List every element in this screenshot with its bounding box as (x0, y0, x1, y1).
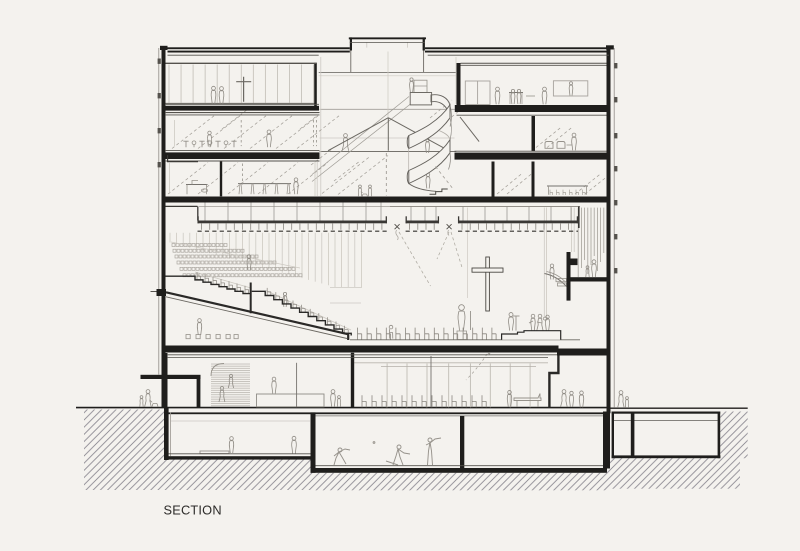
svg-text:SECTION: SECTION (164, 503, 222, 518)
